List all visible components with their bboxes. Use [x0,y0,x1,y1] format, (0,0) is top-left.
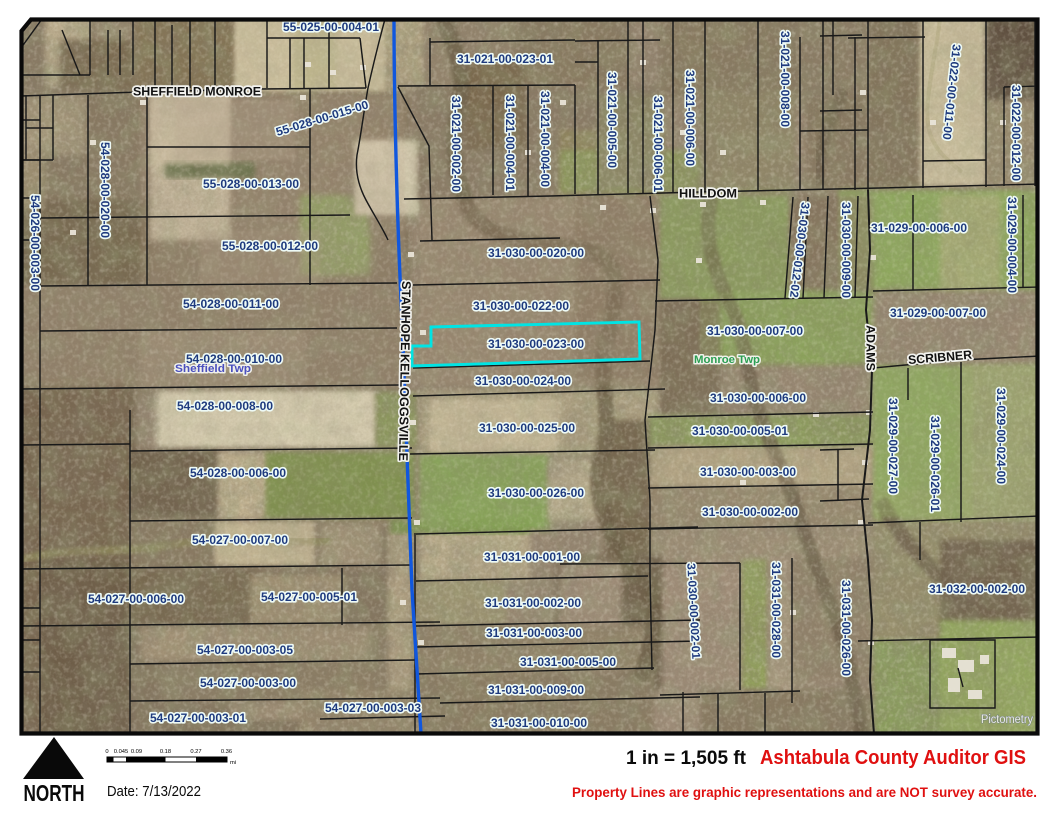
svg-text:54-027-00-007-00: 54-027-00-007-00 [192,534,288,547]
svg-text:31-029-00-004-00: 31-029-00-004-00 [1005,197,1018,293]
svg-text:31-030-00-022-00: 31-030-00-022-00 [473,300,569,313]
svg-text:31-021-00-023-01: 31-021-00-023-01 [457,53,554,66]
svg-text:0.27: 0.27 [190,749,201,755]
svg-text:31-029-00-006-00: 31-029-00-006-00 [871,222,967,235]
svg-text:31-030-00-020-00: 31-030-00-020-00 [488,247,584,260]
svg-text:54-027-00-005-01: 54-027-00-005-01 [261,591,358,604]
svg-text:31-031-00-002-00: 31-031-00-002-00 [485,597,581,610]
svg-text:Date: 7/13/2022: Date: 7/13/2022 [107,784,201,800]
svg-text:54-026-00-003-00: 54-026-00-003-00 [28,195,41,291]
svg-text:55-028-00-012-00: 55-028-00-012-00 [222,240,318,253]
svg-text:54-028-00-011-00: 54-028-00-011-00 [183,298,279,311]
svg-text:NORTH: NORTH [24,780,85,806]
svg-text:31-030-00-024-00: 31-030-00-024-00 [475,375,571,388]
svg-text:31-029-00-024-00: 31-029-00-024-00 [994,388,1007,484]
svg-text:0.18: 0.18 [160,749,171,755]
svg-text:Ashtabula County Auditor GIS: Ashtabula County Auditor GIS [760,746,1026,769]
svg-text:ADAMS: ADAMS [864,325,878,371]
svg-text:31-021-00-005-00: 31-021-00-005-00 [605,72,618,168]
svg-text:SHEFFIELD MONROE: SHEFFIELD MONROE [133,84,261,98]
svg-text:0.09: 0.09 [131,749,142,755]
svg-text:31-031-00-010-00: 31-031-00-010-00 [491,717,587,730]
svg-text:31-031-00-001-00: 31-031-00-001-00 [484,551,580,564]
svg-text:54-027-00-003-00: 54-027-00-003-00 [200,677,296,690]
svg-text:31-029-00-026-01: 31-029-00-026-01 [928,416,941,513]
svg-text:1 in = 1,505 ft: 1 in = 1,505 ft [626,747,746,769]
svg-text:Monroe Twp: Monroe Twp [694,354,760,366]
svg-text:31-021-00-008-00: 31-021-00-008-00 [778,31,791,127]
svg-text:HILLDOM: HILLDOM [679,186,737,200]
svg-text:31-030-00-025-00: 31-030-00-025-00 [479,422,575,435]
svg-text:31-031-00-003-00: 31-031-00-003-00 [486,627,582,640]
svg-text:31-030-00-007-00: 31-030-00-007-00 [707,325,803,338]
svg-text:0.36: 0.36 [221,749,232,755]
svg-text:0.045: 0.045 [114,749,129,755]
svg-text:31-030-00-006-00: 31-030-00-006-00 [710,392,806,405]
svg-text:31-031-00-028-00: 31-031-00-028-00 [769,562,782,658]
svg-text:54-028-00-020-00: 54-028-00-020-00 [98,142,111,238]
svg-text:54-028-00-008-00: 54-028-00-008-00 [177,400,273,413]
svg-text:55-025-00-004-01: 55-025-00-004-01 [283,21,380,34]
svg-text:54-027-00-003-05: 54-027-00-003-05 [197,644,294,657]
svg-text:31-031-00-026-00: 31-031-00-026-00 [839,580,852,676]
svg-text:31-031-00-009-00: 31-031-00-009-00 [488,684,584,697]
svg-text:Pictometry: Pictometry [981,714,1033,726]
svg-text:31-030-00-023-00: 31-030-00-023-00 [488,338,584,351]
svg-text:55-028-00-013-00: 55-028-00-013-00 [203,178,299,191]
svg-text:Property Lines are graphic rep: Property Lines are graphic representatio… [572,785,1037,800]
svg-text:31-021-00-004-01: 31-021-00-004-01 [503,95,516,192]
svg-text:54-027-00-003-03: 54-027-00-003-03 [325,702,422,715]
svg-text:31-030-00-026-00: 31-030-00-026-00 [488,487,584,500]
svg-text:Sheffield Twp: Sheffield Twp [175,363,251,375]
svg-text:31-021-00-006-00: 31-021-00-006-00 [683,70,696,166]
svg-text:31-021-00-002-00: 31-021-00-002-00 [449,96,462,192]
svg-text:31-030-00-003-00: 31-030-00-003-00 [700,466,796,479]
svg-text:31-031-00-005-00: 31-031-00-005-00 [520,656,616,669]
svg-text:0: 0 [105,749,108,755]
svg-text:31-021-00-006-01: 31-021-00-006-01 [651,96,664,193]
svg-text:54-027-00-003-01: 54-027-00-003-01 [150,712,247,725]
svg-text:31-030-00-005-01: 31-030-00-005-01 [692,425,789,438]
svg-text:31-030-00-002-00: 31-030-00-002-00 [702,506,798,519]
svg-text:31-029-00-007-00: 31-029-00-007-00 [890,307,986,320]
svg-text:54-027-00-006-00: 54-027-00-006-00 [88,593,184,606]
svg-text:31-029-00-027-00: 31-029-00-027-00 [886,398,899,494]
svg-text:31-022-00-012-00: 31-022-00-012-00 [1009,85,1022,181]
svg-text:31-021-00-004-00: 31-021-00-004-00 [538,91,551,187]
svg-text:31-030-00-009-00: 31-030-00-009-00 [839,202,852,298]
svg-text:mi: mi [230,760,236,766]
svg-text:31-032-00-002-00: 31-032-00-002-00 [929,583,1025,596]
svg-text:54-028-00-006-00: 54-028-00-006-00 [190,467,286,480]
